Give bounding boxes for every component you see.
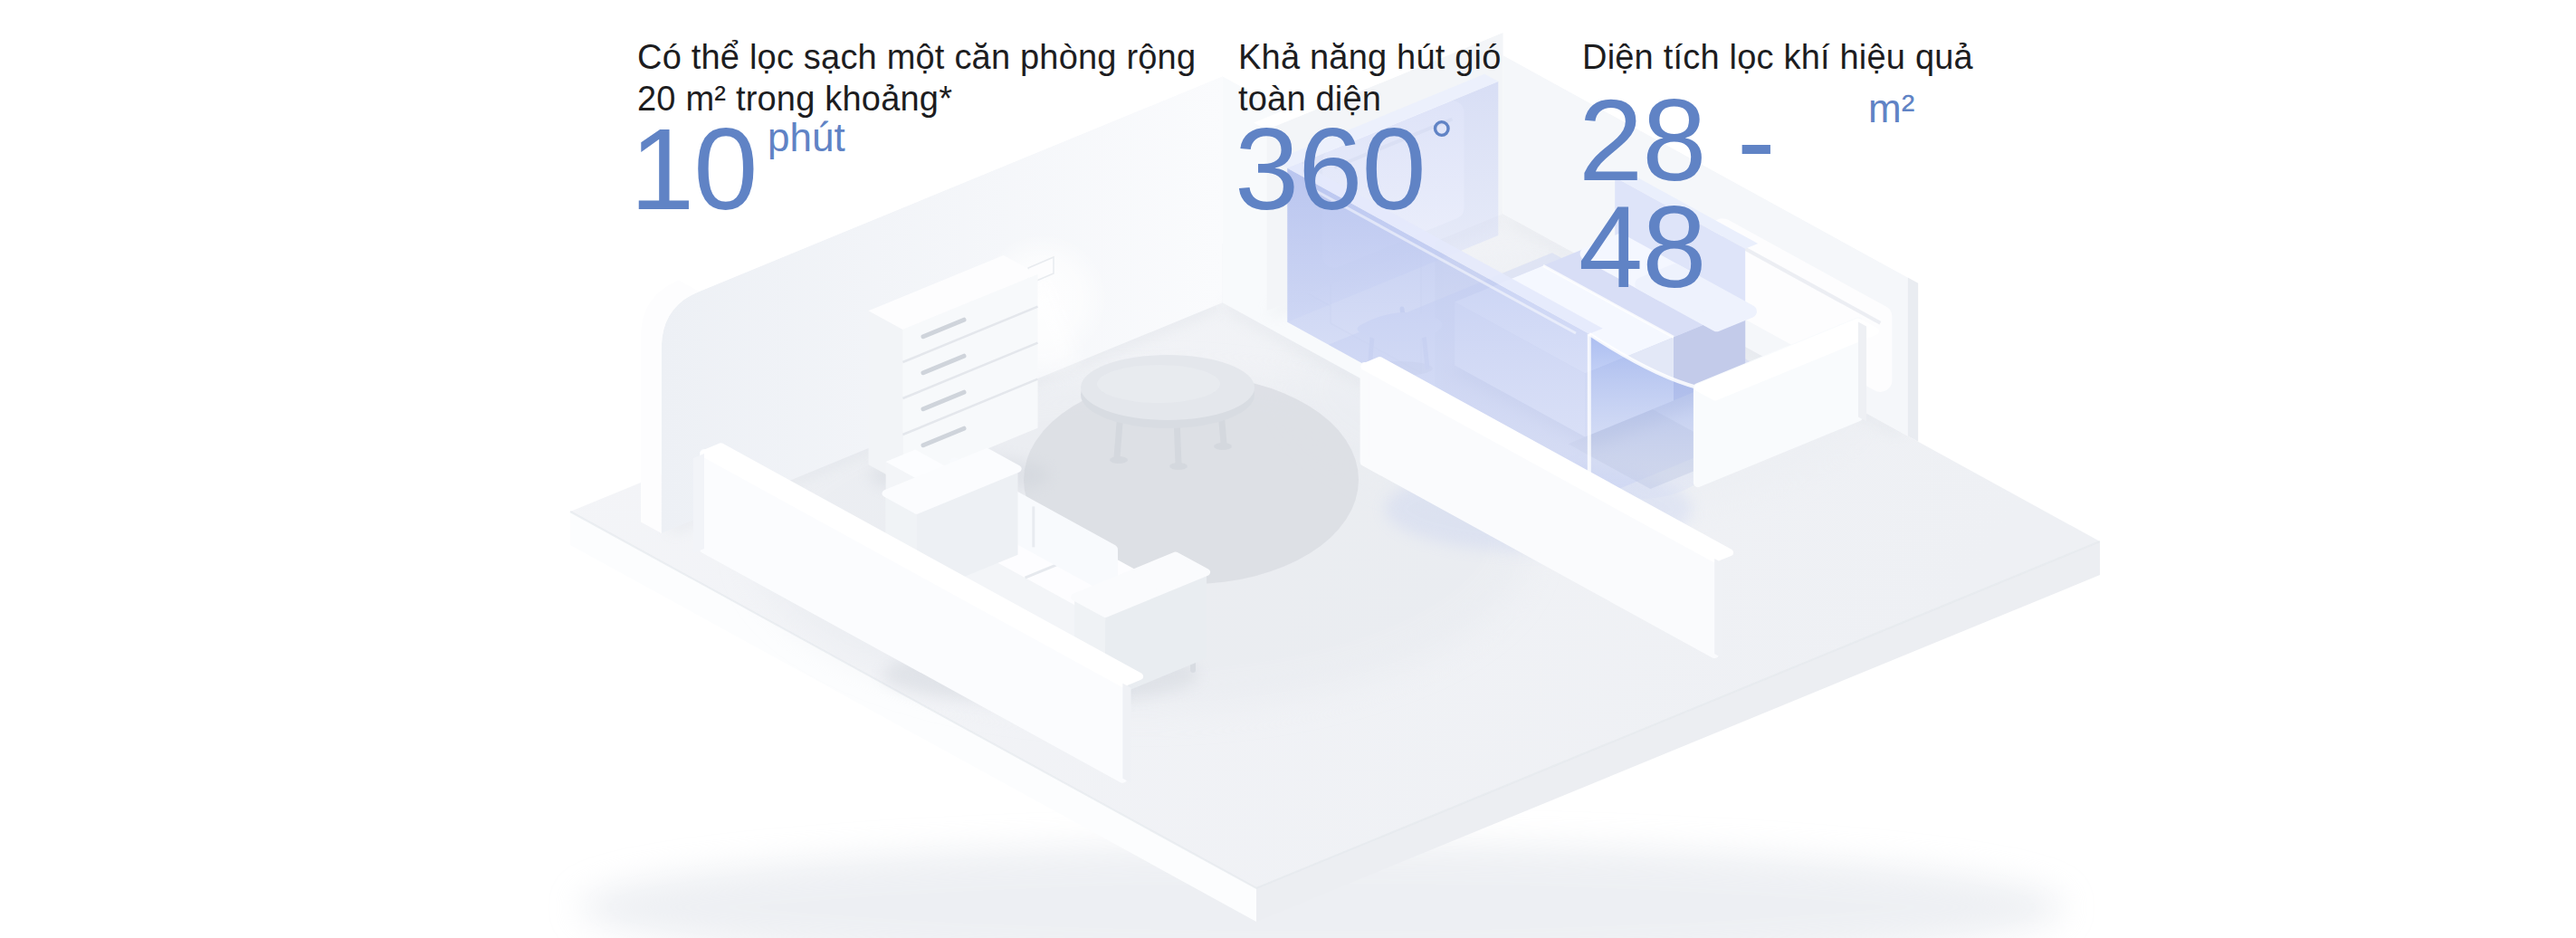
- stat-value: 360: [1235, 116, 1426, 223]
- stat-label-line: Diện tích lọc khí hiệu quả: [1582, 36, 2035, 78]
- degree-symbol: °: [1430, 112, 1454, 170]
- stat-value: 10: [630, 116, 757, 223]
- stat-airflow-value-row: 360 °: [1235, 116, 1426, 223]
- stat-unit: phút: [768, 118, 845, 158]
- stat-unit: m²: [1868, 89, 1914, 129]
- stat-coverage-area-label: Diện tích lọc khí hiệu quả: [1582, 36, 2035, 78]
- stat-clean-time: Có thể lọc sạch một căn phòng rộng 20 m²…: [637, 36, 1235, 308]
- stat-label-line: Có thể lọc sạch một căn phòng rộng: [637, 36, 1235, 78]
- stat-coverage-area: Diện tích lọc khí hiệu quả 28 - 48 m²: [1582, 36, 2035, 344]
- stat-clean-time-value-row: 10 phút: [630, 116, 757, 223]
- stat-value: 28 - 48: [1579, 87, 1807, 301]
- air-purifier-performance-infographic: Có thể lọc sạch một căn phòng rộng 20 m²…: [0, 0, 2576, 938]
- stat-coverage-area-value-row: 28 - 48 m²: [1579, 87, 1807, 301]
